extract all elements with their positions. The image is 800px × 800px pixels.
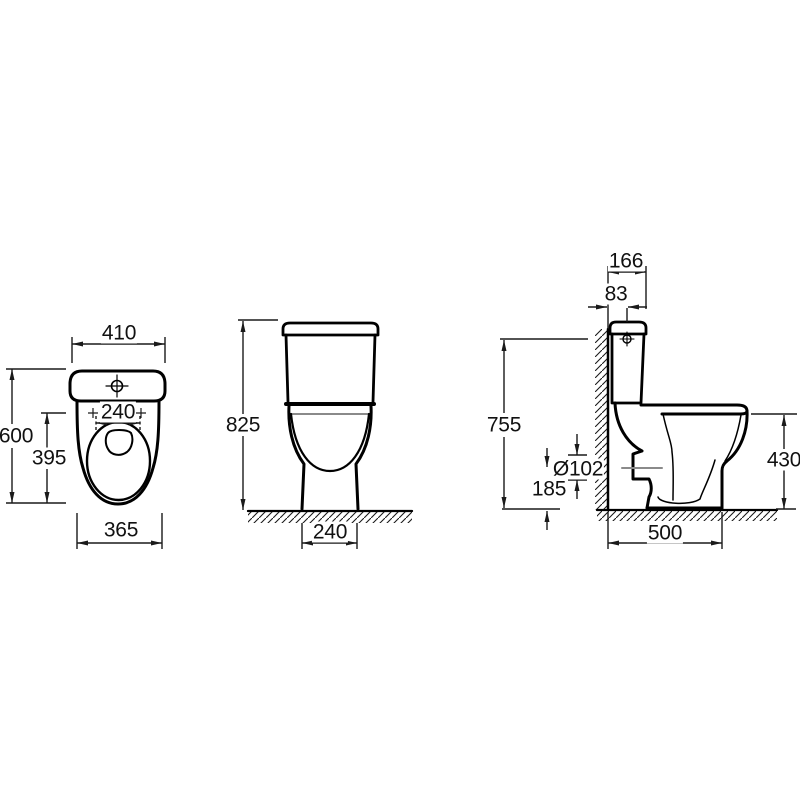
front-view-cistern-body [286, 335, 375, 402]
dim-inlet-offset-label: 83 [604, 284, 629, 305]
dim-seat-depth-label: 395 [31, 448, 67, 469]
side-view-back-profile [615, 403, 651, 508]
side-view-cistern-body [612, 334, 644, 403]
dim-outlet-diameter-label: Ø102 [552, 459, 604, 480]
dim-outlet-height-label: 185 [531, 479, 567, 500]
dim-overall-depth-label: 600 [0, 426, 34, 447]
front-view-outline [248, 323, 412, 511]
toilet-dimension-drawing: 410 240 600 395 365 825 240 166 83 755 Ø… [0, 0, 800, 800]
front-view-bowl [289, 406, 371, 509]
side-view-cistern-lid [610, 322, 646, 334]
dim-seat-hinge-width-label: 240 [100, 402, 136, 423]
dim-rim-height-label: 430 [766, 450, 800, 471]
side-view-wall-hatch [595, 329, 608, 510]
dim-overall-width-label: 410 [101, 323, 137, 344]
dim-pedestal-width-label: 240 [312, 522, 348, 543]
side-view-outline [597, 322, 777, 510]
dim-footprint-width-label: 365 [103, 520, 139, 541]
top-view-water-spot [106, 430, 133, 455]
top-view-outline [70, 371, 165, 504]
dim-overall-height-label: 825 [225, 415, 261, 436]
top-view-bowl-opening [87, 422, 150, 500]
water-inlet-crosshair-icon [106, 375, 128, 397]
side-view-floor-hatch [597, 511, 777, 521]
dim-cistern-lid-depth-label: 166 [608, 251, 644, 272]
dim-footprint-depth-label: 500 [647, 523, 683, 544]
side-view-seat [641, 405, 747, 414]
dim-inlet-height-label: 755 [486, 415, 522, 436]
front-view-cistern-lid [283, 323, 378, 335]
